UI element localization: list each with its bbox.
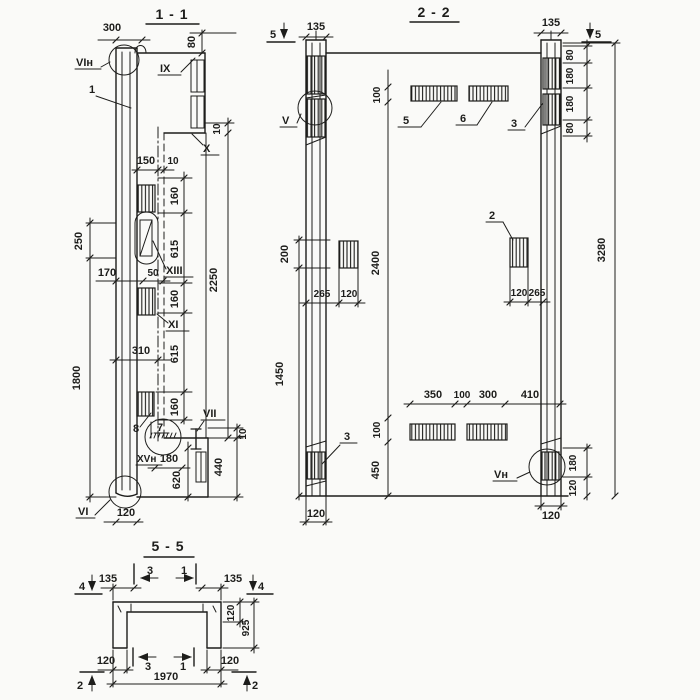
dim-250: 250 bbox=[73, 232, 85, 250]
dim-135-l: 135 bbox=[99, 573, 117, 585]
dims-1-1: 300 80 10 2250 150 10 160 615 160 615 16… bbox=[71, 22, 249, 525]
left-rib bbox=[306, 31, 326, 496]
mark-2-left: 2 bbox=[77, 680, 83, 692]
dim-120-br: 120 bbox=[221, 655, 239, 667]
label-xvn: XVн bbox=[137, 454, 156, 465]
dim-80-b: 80 bbox=[565, 122, 576, 134]
dim-150: 150 bbox=[137, 155, 155, 167]
embedded-bars bbox=[339, 86, 528, 440]
dim-300: 300 bbox=[479, 389, 497, 401]
dim-100-top: 100 bbox=[372, 86, 383, 103]
dim-2400: 2400 bbox=[370, 251, 382, 275]
drawing-sheet: 1 - 1 bbox=[0, 0, 700, 700]
cut-marks-top: 3 1 bbox=[134, 564, 196, 584]
label-vn: Vн bbox=[494, 469, 508, 481]
dim-180-b: 180 bbox=[565, 95, 576, 112]
dim-135-r: 135 bbox=[224, 573, 242, 585]
dim-50: 50 bbox=[147, 268, 159, 279]
dim-170: 170 bbox=[98, 267, 116, 279]
cut-marks-bottom: 3 1 bbox=[133, 648, 194, 673]
section-mark-5-right: 5 bbox=[582, 23, 611, 42]
label-3-bot: 3 bbox=[344, 431, 350, 443]
dim-1800: 1800 bbox=[71, 366, 83, 390]
dim-925: 925 bbox=[241, 619, 252, 636]
dim-160-c: 160 bbox=[169, 398, 181, 416]
mark-4-right: 4 bbox=[258, 581, 265, 593]
label-8: 8 bbox=[133, 423, 139, 435]
dim-120-brr: 120 bbox=[542, 510, 560, 522]
dim-80: 80 bbox=[186, 36, 198, 48]
mark-5-right: 5 bbox=[595, 29, 601, 41]
label-7: 7 bbox=[157, 422, 163, 434]
section-mark-2-right: 2 bbox=[232, 672, 258, 692]
label-5: 5 bbox=[403, 115, 409, 127]
label-1: 1 bbox=[89, 84, 95, 96]
dim-10-top: 10 bbox=[212, 123, 223, 135]
label-xiii: XIII bbox=[166, 265, 183, 277]
dim-180-br: 180 bbox=[568, 454, 579, 471]
cut-mark-vii bbox=[191, 429, 201, 449]
dim-120-l-mid: 120 bbox=[341, 289, 358, 300]
dim-615-a: 615 bbox=[169, 240, 181, 258]
dim-120-r-mid: 120 bbox=[511, 288, 528, 299]
dim-135-r: 135 bbox=[542, 17, 560, 29]
dim-120-bl: 120 bbox=[97, 655, 115, 667]
dims-5-5: 135 135 120 925 120 120 1970 bbox=[97, 573, 259, 687]
dim-300: 300 bbox=[103, 22, 121, 34]
dim-200: 200 bbox=[279, 245, 291, 263]
dim-615-b: 615 bbox=[169, 345, 181, 363]
label-vin: VIн bbox=[76, 57, 93, 69]
label-v: V bbox=[282, 115, 290, 127]
dim-160-a: 160 bbox=[169, 187, 181, 205]
mark-5-left: 5 bbox=[270, 29, 276, 41]
dim-160-b: 160 bbox=[169, 290, 181, 308]
dim-410: 410 bbox=[521, 389, 539, 401]
channel-section bbox=[113, 602, 221, 648]
dim-265-l: 265 bbox=[314, 289, 331, 300]
mark-2-right: 2 bbox=[252, 680, 258, 692]
dim-10-bot: 10 bbox=[238, 428, 249, 440]
label-3-top: 3 bbox=[511, 118, 517, 130]
dim-180: 180 bbox=[160, 453, 178, 465]
dim-135-l: 135 bbox=[307, 21, 325, 33]
section-mark-5-left: 5 bbox=[267, 23, 295, 42]
detail-circle-vi bbox=[109, 476, 141, 508]
mark-4-left: 4 bbox=[79, 581, 86, 593]
view-5-5-title: 5 - 5 bbox=[151, 538, 184, 554]
dim-3280: 3280 bbox=[596, 238, 608, 262]
label-vii: VII bbox=[203, 408, 216, 420]
dim-120-br: 120 bbox=[568, 479, 579, 496]
right-rib bbox=[541, 31, 561, 496]
label-vi: VI bbox=[78, 506, 88, 518]
dim-120-flange: 120 bbox=[226, 604, 237, 621]
label-2: 2 bbox=[489, 210, 495, 222]
label-x: X bbox=[203, 143, 211, 155]
dim-1970: 1970 bbox=[154, 671, 178, 683]
cut-1-top: 1 bbox=[181, 565, 187, 577]
dim-265-r: 265 bbox=[529, 288, 546, 299]
dim-120-bl: 120 bbox=[307, 508, 325, 520]
dim-100-mid: 100 bbox=[454, 390, 471, 401]
view-1-1: 1 - 1 bbox=[71, 6, 249, 525]
dim-1450: 1450 bbox=[274, 362, 286, 386]
view-2-2: 2 - 2 5 5 bbox=[267, 4, 620, 525]
view-2-2-title: 2 - 2 bbox=[417, 4, 450, 20]
label-6: 6 bbox=[460, 113, 466, 125]
cut-1-bot: 1 bbox=[180, 661, 186, 673]
dim-310: 310 bbox=[132, 345, 150, 357]
dim-620: 620 bbox=[171, 471, 183, 489]
section-mark-2-left: 2 bbox=[77, 672, 104, 692]
dim-2250: 2250 bbox=[208, 268, 220, 292]
drawing-canvas: 1 - 1 bbox=[0, 0, 700, 700]
flange-bar bbox=[116, 46, 146, 497]
view-5-5: 5 - 5 4 4 2 2 3 1 bbox=[75, 538, 273, 692]
dim-350: 350 bbox=[424, 389, 442, 401]
cut-3-top: 3 bbox=[147, 565, 153, 577]
lifting-loop bbox=[135, 212, 158, 264]
dim-440: 440 bbox=[213, 458, 225, 476]
section-mark-4-right: 4 bbox=[247, 575, 273, 594]
dim-180-a: 180 bbox=[565, 67, 576, 84]
dim-450: 450 bbox=[370, 461, 382, 479]
label-xi: XI bbox=[168, 319, 178, 331]
dim-100-bot: 100 bbox=[372, 421, 383, 438]
dim-10-web: 10 bbox=[167, 156, 179, 167]
dim-120: 120 bbox=[117, 507, 135, 519]
cut-3-bot: 3 bbox=[145, 661, 151, 673]
dim-80-a: 80 bbox=[565, 49, 576, 61]
label-ix: IX bbox=[160, 63, 171, 75]
detail-circle-vin bbox=[109, 45, 139, 75]
view-1-1-title: 1 - 1 bbox=[155, 6, 188, 22]
